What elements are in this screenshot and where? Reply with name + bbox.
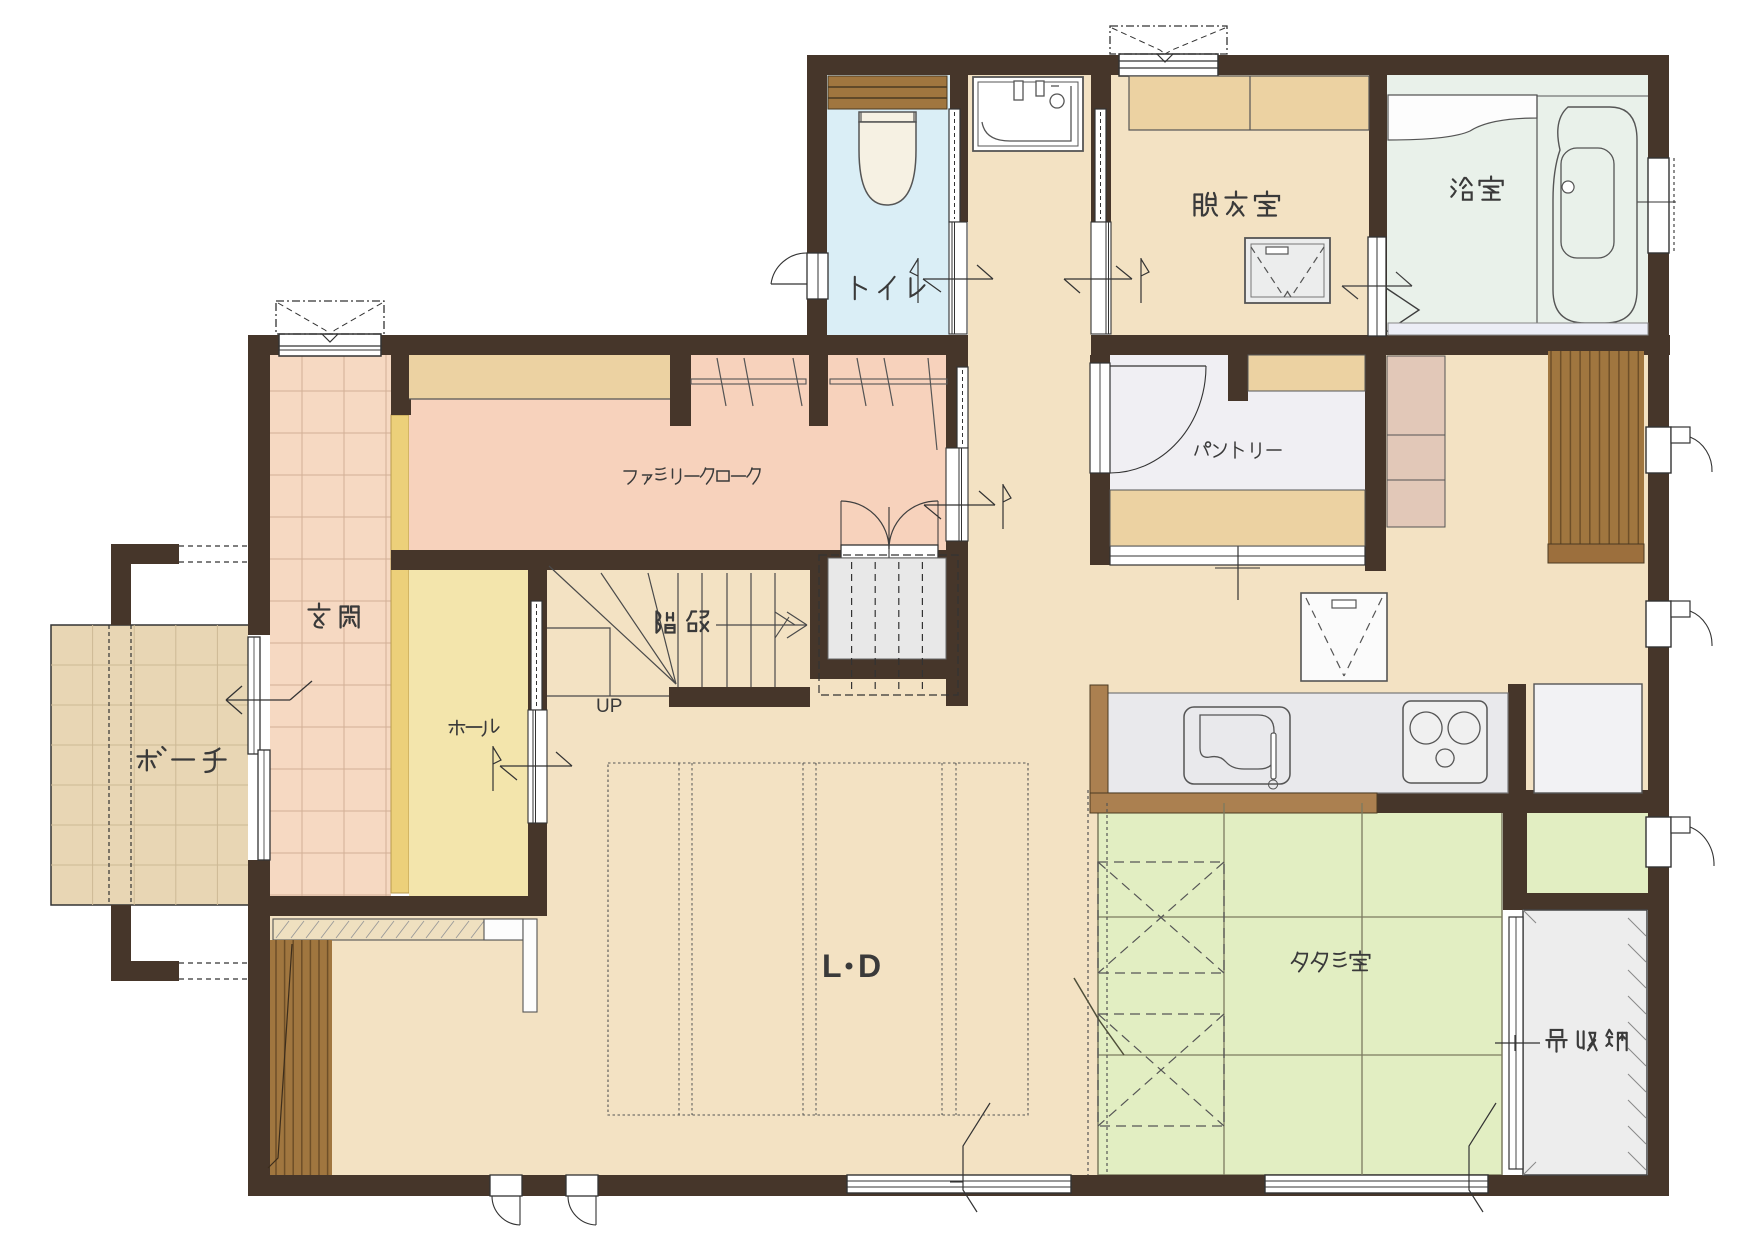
svg-text:L: L	[822, 948, 842, 984]
svg-text:D: D	[858, 948, 881, 984]
svg-text:UP: UP	[596, 696, 622, 717]
